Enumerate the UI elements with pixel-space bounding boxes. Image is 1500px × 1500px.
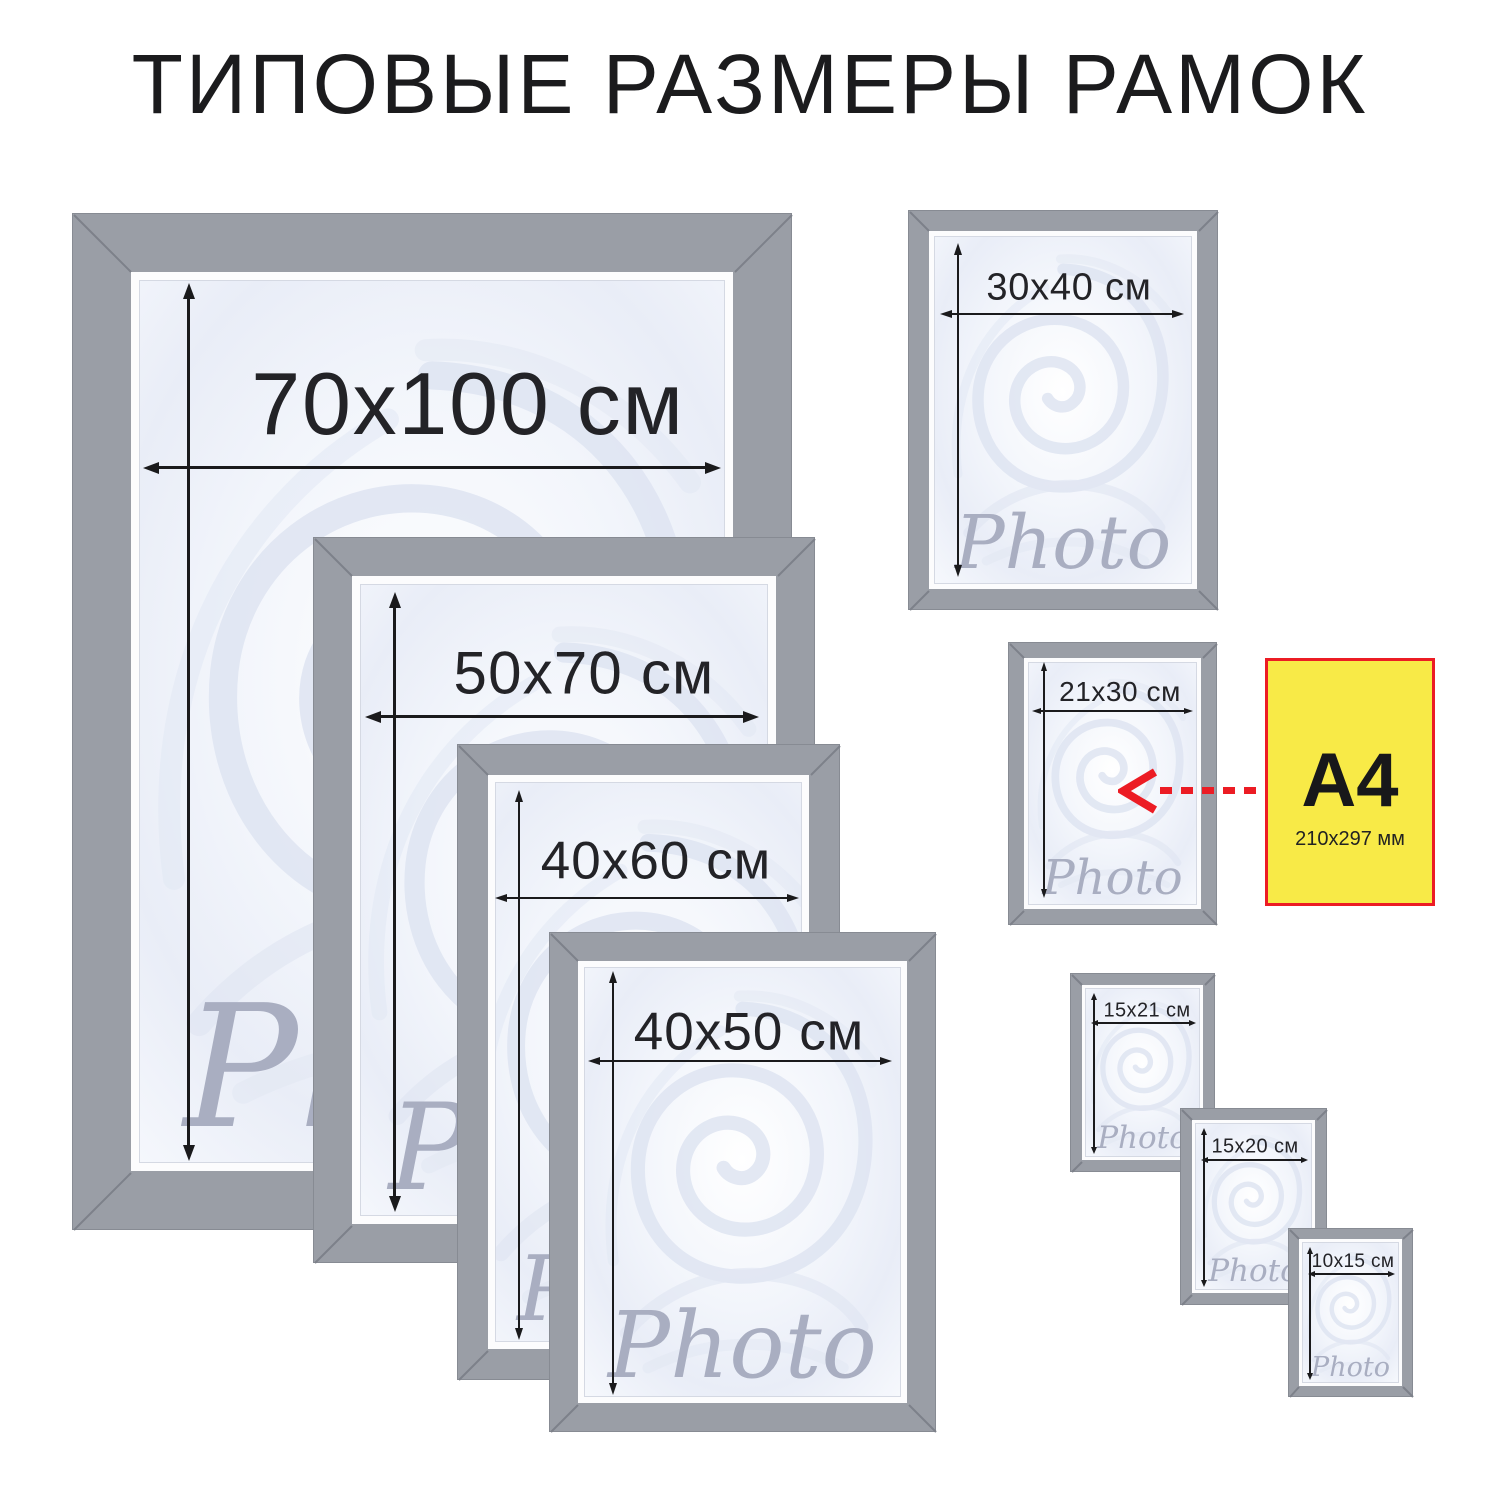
a4-note-card: A4 210x297 мм — [1265, 658, 1435, 906]
size-label-21x30: 21x30 см — [1059, 676, 1181, 708]
size-label-40x50: 40x50 см — [634, 1002, 865, 1063]
size-label-15x20: 15x20 см — [1212, 1136, 1299, 1159]
width-dimension-arrow — [379, 715, 745, 718]
height-dimension-arrow — [518, 800, 520, 1330]
size-label-15x21: 15x21 см — [1104, 1000, 1191, 1023]
height-dimension-arrow — [393, 606, 396, 1198]
size-label-50x70: 50x70 см — [454, 639, 715, 708]
width-dimension-arrow — [1206, 1159, 1303, 1161]
size-label-40x60: 40x60 см — [541, 831, 772, 892]
size-label-30x40: 30x40 см — [986, 267, 1151, 310]
a4-label: A4 — [1301, 743, 1398, 819]
width-dimension-arrow — [1039, 710, 1186, 712]
height-dimension-arrow — [957, 253, 959, 567]
photo-watermark: Photo — [1208, 1256, 1299, 1287]
photo-watermark: Photo — [1097, 1123, 1188, 1154]
page-title: ТИПОВЫЕ РАЗМЕРЫ РАМОК — [0, 36, 1500, 133]
height-dimension-arrow — [187, 297, 190, 1147]
width-dimension-arrow — [950, 313, 1174, 315]
width-dimension-arrow — [1313, 1273, 1390, 1275]
frame-40x50: Photo 40x50 см — [549, 932, 936, 1432]
frame-30x40: Photo 30x40 см — [908, 210, 1218, 610]
a4-pointer-chevron-icon — [1118, 768, 1158, 814]
photo-watermark: Photo — [955, 506, 1171, 580]
frame-21x30: Photo 21x30 см — [1008, 642, 1217, 925]
photo-watermark: Photo — [608, 1300, 877, 1392]
width-dimension-arrow — [505, 897, 789, 899]
a4-pointer-dashed-line — [1160, 787, 1264, 794]
height-dimension-arrow — [1043, 669, 1045, 891]
height-dimension-arrow — [612, 981, 614, 1385]
width-dimension-arrow — [157, 466, 707, 469]
size-label-10x15: 10x15 см — [1312, 1251, 1395, 1273]
photo-watermark: Photo — [1042, 854, 1182, 902]
frame-sizes-infographic: ТИПОВЫЕ РАЗМЕРЫ РАМОК Photo 70x100 см Ph… — [0, 0, 1500, 1500]
a4-dimensions: 210x297 мм — [1295, 829, 1405, 849]
height-dimension-arrow — [1203, 1133, 1205, 1282]
size-label-70x100: 70x100 см — [251, 353, 685, 455]
frame-10x15: Photo 10x15 см — [1288, 1228, 1413, 1397]
photo-watermark: Photo — [1311, 1354, 1390, 1381]
